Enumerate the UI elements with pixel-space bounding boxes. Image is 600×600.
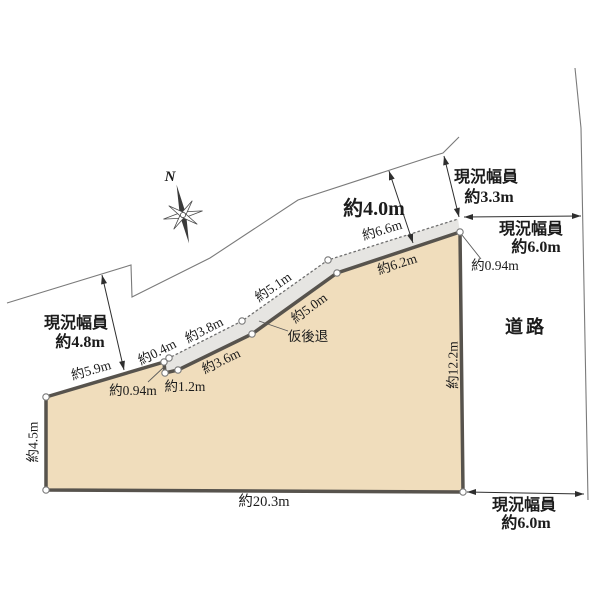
width-right-bottom-line2: 約6.0m	[501, 513, 551, 532]
width-right-top-line2: 約6.0m	[511, 237, 561, 256]
width-left-line2: 約4.8m	[55, 332, 105, 351]
road-width-6-0-top-arrow	[464, 213, 581, 220]
vertex-marker	[457, 229, 463, 235]
width-top-line2: 約3.3m	[464, 187, 514, 206]
edge-bottom-label: 約20.3m	[238, 493, 290, 510]
vertex-marker	[334, 270, 340, 276]
vertex-marker	[162, 370, 168, 376]
edge-left-label: 約4.5m	[26, 421, 41, 462]
vertex-marker	[175, 367, 181, 373]
road-width-6-0-bottom-arrow	[467, 489, 584, 497]
width-right-top-line1: 現況幅員	[499, 219, 563, 238]
corner-depth-leader-line	[462, 235, 481, 259]
vertex-marker	[166, 355, 172, 361]
road-label: 道路	[505, 316, 547, 337]
site-plan-svg: N 道路 現況幅員 約4.8m 現況幅員 約3.3m 現況幅員 約6.0m 現況…	[0, 0, 600, 600]
land-plot-diagram: N 道路 現況幅員 約4.8m 現況幅員 約3.3m 現況幅員 約6.0m 現況…	[0, 0, 600, 600]
notch-width-label: 約1.2m	[165, 379, 206, 394]
north-label: N	[164, 169, 177, 185]
width-left-line1: 現況幅員	[44, 313, 108, 332]
vertex-marker	[43, 394, 49, 400]
compass-rose-icon	[157, 181, 209, 248]
vertex-marker	[249, 331, 255, 337]
width-top-line1: 現況幅員	[454, 167, 518, 186]
width-right-bottom-line1: 現況幅員	[492, 495, 556, 514]
road-width-3-3-arrow	[443, 156, 460, 217]
vertex-marker	[460, 489, 466, 495]
vertex-marker	[239, 318, 245, 324]
setback-label: 仮後退	[288, 329, 329, 344]
vertex-marker	[43, 487, 49, 493]
road-offset-label: 約4.0m	[343, 196, 405, 220]
corner-depth-label: 約0.94m	[471, 258, 519, 273]
notch-depth-label: 約0.94m	[109, 383, 157, 398]
edge-right-label: 約12.2m	[446, 341, 461, 389]
road-east-edge-line	[575, 68, 588, 500]
vertex-marker	[325, 257, 331, 263]
